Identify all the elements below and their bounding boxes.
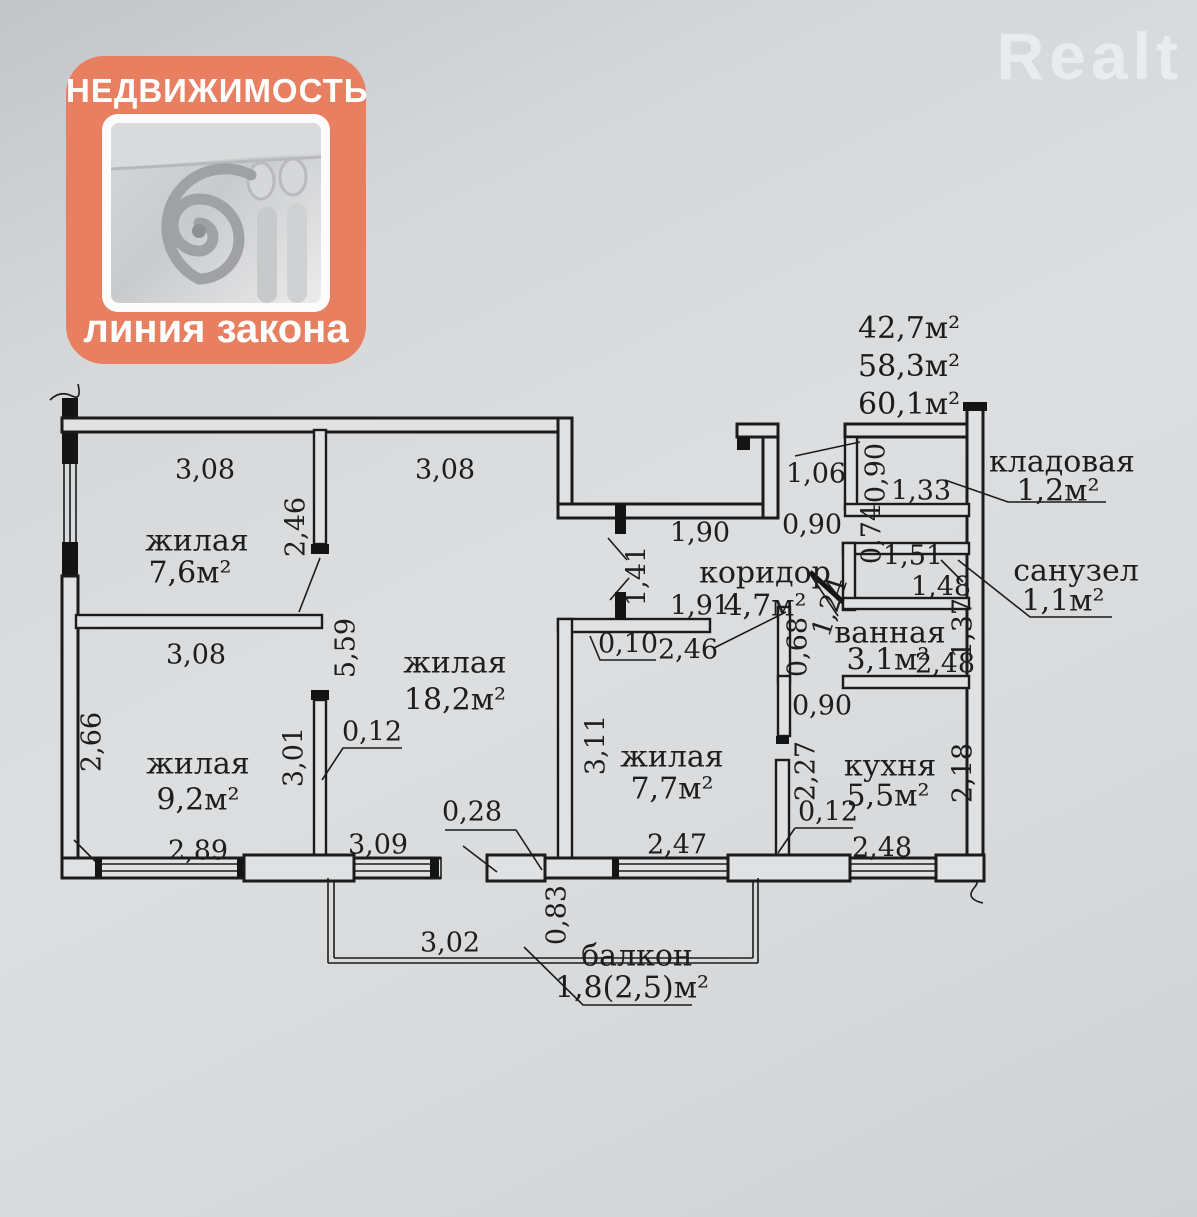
room-area-living1: 7,6м² [148,556,231,591]
dim-label: 0,90 [782,510,842,541]
dim-label: 0,12 [798,797,858,828]
dim-label: 2,48 [915,649,975,680]
total-area-3: 60,1м² [858,386,960,424]
total-area-1: 42,7м² [858,310,960,348]
dim-label: 1,06 [786,459,846,490]
dim-label: 0,28 [442,797,502,828]
dim-label: 1,51 [883,541,943,572]
total-areas: 42,7м² 58,3м² 60,1м² [858,310,960,424]
room-area-storage: 1,2м² [1016,474,1099,509]
dim-label: 2,48 [852,833,912,864]
dim-label: 1,91 [670,591,730,622]
dim-label: 0,90 [861,443,892,503]
dim-label: 3,08 [175,455,235,486]
dim-label: 2,18 [948,743,979,803]
dim-label: 0,12 [342,717,402,748]
scanned-floor-plan-page: Realt НЕДВИЖИМОСТЬ линия закона [0,0,1197,1217]
floor-plan-drawing [0,0,1197,1217]
room-name-corridor: коридор [699,556,831,591]
room-area-living3: 18,2м² [404,683,506,718]
dim-label: 3,08 [415,455,475,486]
dim-label: 0,68 [783,617,814,677]
dim-label: 0,10 [598,629,658,660]
dim-label: 1,90 [670,518,730,549]
dim-label: 2,89 [168,836,228,867]
room-name-living4: жилая [620,740,723,775]
total-area-2: 58,3м² [858,348,960,386]
room-area-living2: 9,2м² [156,783,239,818]
dim-label: 2,27 [791,741,822,801]
dim-label: 3,11 [581,715,612,775]
dim-label: 1,41 [622,546,653,606]
dim-label: 3,02 [420,928,480,959]
dim-label: 3,01 [279,727,310,787]
room-name-living2: жилая [146,747,249,782]
room-name-living3: жилая [403,646,506,681]
dim-label: 2,46 [658,635,718,666]
room-name-balcony: балкон [581,939,693,974]
dim-label: 5,59 [331,618,362,678]
room-area-balcony: 1,8(2,5)м² [555,971,709,1006]
dim-label: 1,33 [891,476,951,507]
room-name-living1: жилая [145,524,248,559]
dim-label: 2,66 [77,712,108,772]
dim-label: 2,47 [647,830,707,861]
dim-label: 3,09 [348,830,408,861]
room-area-living4: 7,7м² [630,772,713,807]
dim-label: 0,90 [792,691,852,722]
dim-label: 2,46 [281,497,312,557]
dim-label: 0,83 [542,885,573,945]
room-area-kitchen: 5,5м² [846,779,929,814]
dim-label: 3,08 [166,640,226,671]
room-area-wc: 1,1м² [1021,584,1104,619]
